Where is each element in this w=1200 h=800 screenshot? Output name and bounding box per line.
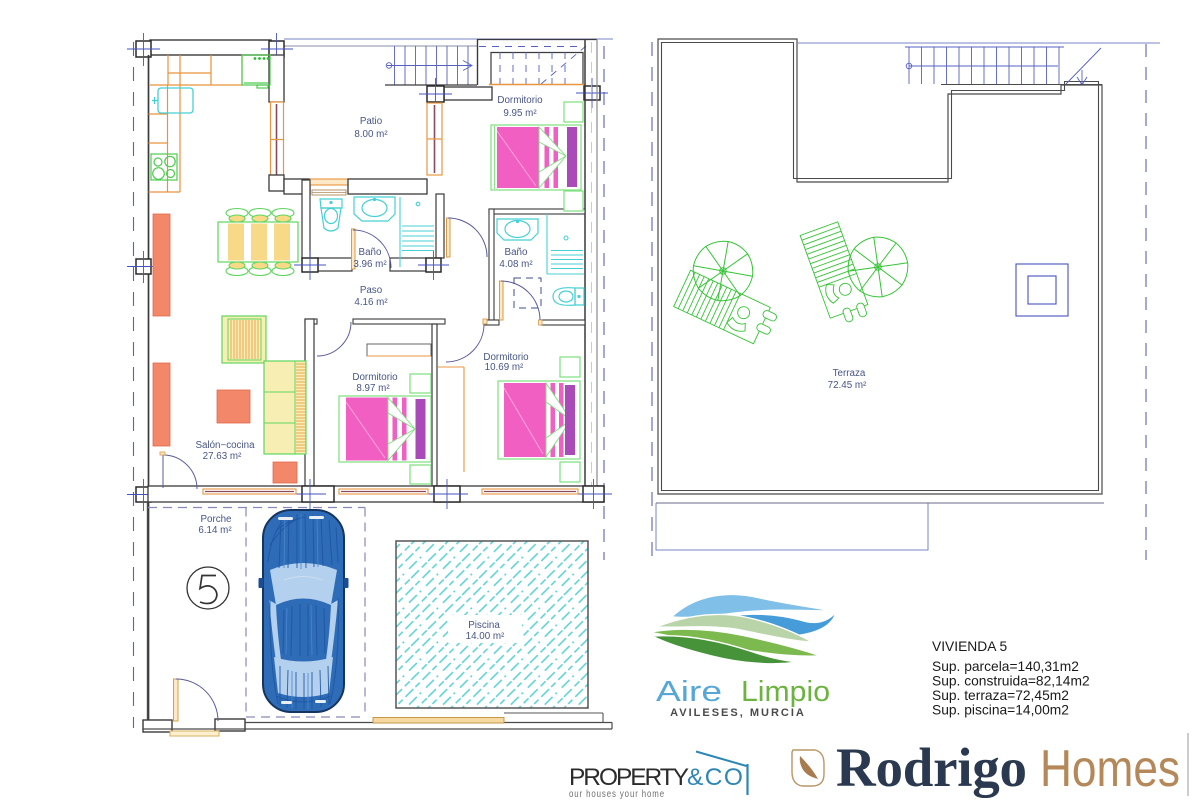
svg-text:Rodrigo: Rodrigo — [836, 737, 1027, 798]
svg-text:PROPERTY&CO: PROPERTY&CO — [569, 764, 743, 791]
svg-text:8.97 m²: 8.97 m² — [356, 383, 390, 394]
svg-text:Piscina: Piscina — [468, 620, 500, 631]
svg-text:Salón−cocina: Salón−cocina — [195, 440, 255, 451]
svg-text:Homes: Homes — [1040, 740, 1180, 798]
svg-text:AVILESES, MURCIA: AVILESES, MURCIA — [670, 707, 806, 719]
svg-text:Dormitorio: Dormitorio — [497, 95, 543, 106]
svg-text:72.45 m²: 72.45 m² — [828, 380, 867, 391]
svg-text:Sup. terraza=72,45m2: Sup. terraza=72,45m2 — [932, 688, 1069, 703]
svg-text:our houses your home: our houses your home — [569, 788, 665, 800]
svg-text:Sup. construida=82,14m2: Sup. construida=82,14m2 — [932, 674, 1090, 689]
svg-text:VIVIENDA 5: VIVIENDA 5 — [932, 639, 1007, 654]
svg-text:3.96 m²: 3.96 m² — [353, 259, 387, 270]
svg-text:Paso: Paso — [360, 285, 383, 296]
svg-text:27.63 m²: 27.63 m² — [203, 451, 242, 462]
svg-text:Baño: Baño — [359, 247, 382, 258]
svg-text:AireLimpio: AireLimpio — [656, 676, 830, 708]
svg-text:Terraza: Terraza — [833, 368, 866, 379]
svg-text:14.00 m²: 14.00 m² — [466, 631, 505, 642]
svg-text:Patio: Patio — [360, 116, 383, 127]
svg-text:4.16 m²: 4.16 m² — [354, 297, 388, 308]
svg-text:8.00 m²: 8.00 m² — [354, 129, 388, 140]
svg-text:9.95 m²: 9.95 m² — [503, 108, 537, 119]
svg-text:Sup. piscina=14,00m2: Sup. piscina=14,00m2 — [932, 703, 1069, 718]
svg-text:10.69 m²: 10.69 m² — [485, 362, 524, 373]
svg-text:Porche: Porche — [200, 514, 232, 525]
svg-text:4.08 m²: 4.08 m² — [499, 259, 533, 270]
svg-text:6.14 m²: 6.14 m² — [198, 525, 232, 536]
svg-text:Sup. parcela=140,31m2: Sup. parcela=140,31m2 — [932, 659, 1079, 674]
svg-text:Baño: Baño — [505, 247, 528, 258]
svg-text:Dormitorio: Dormitorio — [352, 372, 398, 383]
